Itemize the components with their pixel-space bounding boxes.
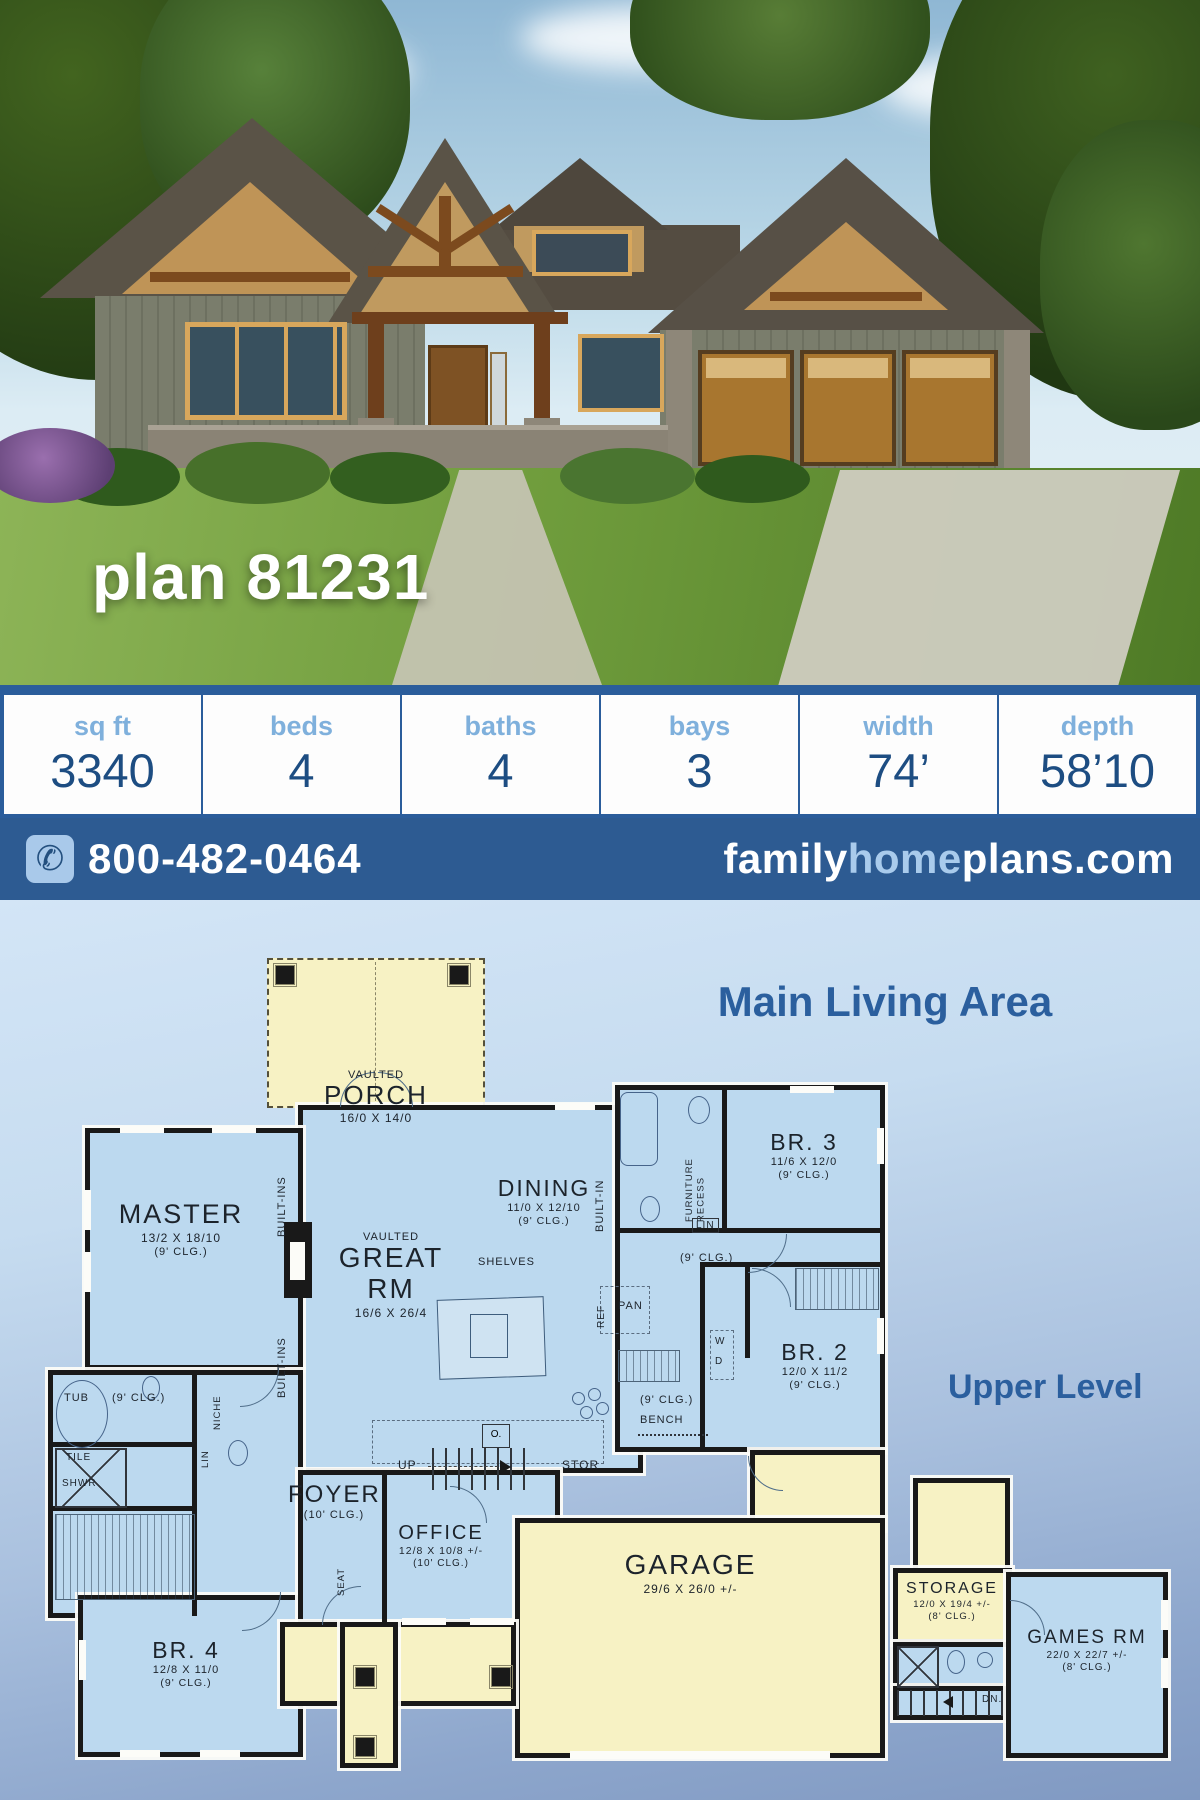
tree-top-center [630,0,930,120]
left-wing-window [185,322,347,420]
window-gap [84,1252,91,1292]
annotation-ceiling: (9' CLG.) [680,1252,733,1264]
closet-hatch [795,1268,879,1310]
annotation-ceiling: (9' CLG.) [640,1394,693,1406]
wall-segment [722,1088,727,1233]
stat-width: width 74’ [798,695,997,814]
stat-bays: bays 3 [599,695,798,814]
island-sink [470,1314,508,1358]
annotation-shwr: SHWR [62,1478,97,1489]
window-gap [402,1618,446,1625]
cooktop-burner [588,1388,601,1401]
window-gap [84,1190,91,1230]
shrub [330,452,450,504]
stat-beds: beds 4 [201,695,400,814]
cooktop-burner [572,1392,585,1405]
stat-value: 4 [487,746,513,795]
walk-in-closet-hatch [55,1514,195,1600]
sink-fixture [640,1196,660,1222]
garage-door [902,350,998,466]
shrub [185,442,330,504]
cooktop-burner [580,1406,593,1419]
annotation-washer: W [715,1336,725,1347]
entry-truss-post [439,196,451,272]
garage-gable-truss [770,292,922,301]
phone-block: ✆ 800-482-0464 [26,835,362,883]
room-label-porch: VAULTED PORCH 16/0 X 14/0 [300,1068,452,1125]
annotation-ref: REF [596,1290,607,1328]
stat-value: 74’ [867,746,930,795]
stairs-direction-arrow [500,1460,511,1474]
contact-bar: ✆ 800-482-0464 familyhomeplans.com [0,818,1200,900]
fireplace-opening [290,1242,305,1280]
shrub [695,455,810,503]
main-level-title: Main Living Area [700,978,1070,1026]
stat-value: 3340 [50,746,155,795]
floor-plan: Main Living Area Upper Level [0,900,1200,1800]
stat-value: 58’10 [1040,746,1155,795]
stone-pillar [1004,330,1030,468]
porch-post [492,1668,510,1686]
stat-label: depth [1061,713,1135,740]
stat-label: bays [669,713,731,740]
driveway [777,470,1180,685]
plan-number-overlay: plan 81231 [92,540,429,614]
annotation-shelves: SHELVES [478,1256,535,1268]
annotation-dryer: D [715,1356,723,1367]
sink-fixture [977,1652,993,1668]
room-label-dining: DINING 11/0 X 12/10 (9' CLG.) [488,1176,600,1227]
window-gap [79,1640,86,1680]
window-gap [1161,1658,1168,1688]
site-plans: plans.com [962,835,1174,882]
window-gap [1161,1600,1168,1630]
bench-dots [638,1434,708,1436]
room-storage-neck [913,1478,1010,1576]
room-label-office: OFFICE 12/8 X 10/8 +/- (10' CLG.) [382,1522,500,1569]
stats-table: sq ft 3340 beds 4 baths 4 bays 3 width 7… [0,685,1200,818]
stat-sqft: sq ft 3340 [4,695,201,814]
annotation-seat: SEAT [336,1546,347,1596]
house-photo: plan 81231 [0,0,1200,685]
toilet-fixture [688,1096,710,1124]
annotation-tile: TILE [66,1452,91,1463]
annotation-lin: LIN [692,1218,719,1233]
tub-fixture [56,1380,108,1448]
left-gable-truss [150,272,350,282]
stat-depth: depth 58’10 [997,695,1196,814]
room-label-br3: BR. 3 11/6 X 12/0 (9' CLG.) [745,1130,863,1181]
annotation-dn: DN. [982,1694,1002,1705]
phone-link[interactable]: 800-482-0464 [88,835,362,883]
annotation-stor: STOR [562,1458,599,1472]
stairs-up [432,1448,532,1490]
wall-segment [745,1262,750,1358]
wall-segment [700,1262,705,1450]
annotation-built-ins: BUILT-INS [276,1306,288,1398]
tub-fixture [620,1092,658,1166]
annotation-tub: TUB [64,1392,89,1404]
garage-door [800,350,896,466]
annotation-up: UP [398,1458,417,1472]
cooktop-burner [596,1402,609,1415]
annotation-bench: BENCH [640,1414,684,1426]
garage-door [698,350,794,466]
annotation-built-ins: BUILT-INS [276,1145,288,1237]
annotation-niche: NICHE [212,1382,223,1430]
window-gap [877,1318,884,1354]
entry-side-window [578,334,664,412]
stairs-down-arrow [943,1696,953,1708]
stat-value: 3 [686,746,712,795]
room-label-foyer: FOYER (10' CLG.) [288,1482,380,1521]
site-home: home [848,835,962,882]
stat-label: beds [270,713,333,740]
stone-pillar [666,330,692,468]
porch-post [356,1668,374,1686]
pin-image: plan 81231 sq ft 3340 beds 4 baths 4 bay… [0,0,1200,1800]
annotation-built-in: BUILT-IN [594,1168,606,1232]
room-label-games-rm: GAMES RM 22/0 X 22/7 +/- (8' CLG.) [1012,1628,1162,1673]
site-family: family [723,835,847,882]
toilet-fixture [947,1650,965,1674]
oven-box: O. [482,1424,510,1448]
mudroom-lockers-hatch [618,1350,680,1382]
annotation-ceiling: (9' CLG.) [112,1392,165,1404]
stat-value: 4 [288,746,314,795]
window-gap [200,1750,240,1757]
window-gap [555,1103,595,1110]
room-label-garage: GARAGE 29/6 X 26/0 +/- [608,1550,773,1596]
window-gap [877,1128,884,1164]
room-label-storage: STORAGE 12/0 X 19/4 +/- (8' CLG.) [896,1580,1008,1622]
room-label-br2: BR. 2 12/0 X 11/2 (9' CLG.) [756,1340,874,1391]
stat-baths: baths 4 [400,695,599,814]
window-gap [120,1750,160,1757]
upper-shower [897,1646,939,1688]
porch-post [276,966,294,984]
stat-label: baths [464,713,536,740]
upper-level-title: Upper Level [948,1368,1178,1407]
room-label-great-rm: VAULTED GREAT RM 16/6 X 26/4 [312,1230,470,1320]
shrub [560,448,695,504]
stat-label: sq ft [74,713,131,740]
phone-icon: ✆ [26,835,74,883]
website-link[interactable]: familyhomeplans.com [723,835,1174,883]
annotation-furniture-recess: FURNITURE RECESS [684,1140,714,1222]
porch-post [356,1738,374,1756]
window-gap [470,1618,514,1625]
annotation-pan: PAN [618,1300,643,1312]
room-front-porch [280,1622,516,1706]
toilet-fixture [228,1440,248,1466]
stairs-dash-line [428,1466,498,1467]
garage-door-opening [570,1751,830,1759]
window-gap [212,1126,256,1133]
annotation-lin: LIN [200,1438,211,1468]
window-gap [790,1086,834,1093]
stat-label: width [863,713,933,740]
room-label-master: MASTER 13/2 X 18/10 (9' CLG.) [95,1200,267,1258]
window-gap [120,1126,164,1133]
room-label-br4: BR. 4 12/8 X 11/0 (9' CLG.) [120,1638,252,1689]
wall-segment [615,1228,885,1233]
porch-post [450,966,468,984]
